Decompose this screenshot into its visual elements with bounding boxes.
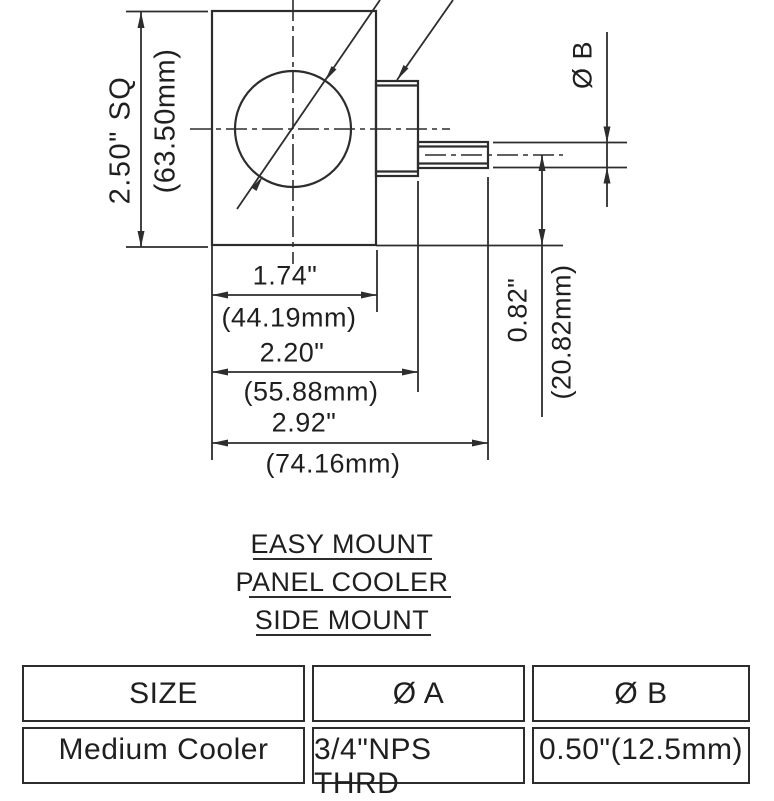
dim-stub-offset	[376, 155, 563, 417]
plate-size-mm-label: (63.50mm)	[153, 49, 180, 194]
width2-inches-label: 2.20"	[260, 340, 325, 367]
dim-arrowhead	[138, 12, 145, 28]
dim-stub-diameter	[493, 32, 627, 207]
leader-arrowhead	[397, 65, 409, 80]
offset-mm-label: (20.82mm)	[549, 264, 576, 399]
dim-arrowhead	[472, 440, 488, 447]
hole-diameter-leader	[237, 0, 380, 209]
title-underline	[249, 596, 451, 598]
dim-arrowhead	[212, 440, 228, 447]
dim-arrowhead	[539, 229, 546, 245]
title-underline	[253, 558, 432, 560]
table-header-dia-a: Ø A	[312, 665, 525, 722]
plate-size-inches-label: 2.50" SQ	[108, 76, 135, 205]
table-header-dia-b: Ø B	[532, 665, 750, 722]
dim-arrowhead	[361, 292, 377, 299]
title-easy-mount: EASY MOUNT	[192, 531, 492, 558]
dim-arrowhead	[402, 369, 418, 376]
table-cell-dia-a-value: 3/4"NPS THRD	[312, 727, 525, 784]
size-spec-table: SIZE Ø A Ø B Medium Cooler 3/4"NPS THRD …	[22, 665, 750, 784]
table-cell-dia-b-value: 0.50"(12.5mm)	[532, 727, 750, 784]
leader-arrowhead	[325, 66, 337, 81]
table-header-size: SIZE	[22, 665, 305, 722]
width2-mm-label: (55.88mm)	[243, 379, 378, 406]
width3-inches-label: 2.92"	[272, 410, 337, 437]
title-panel-cooler: PANEL COOLER	[192, 569, 492, 596]
dim-arrowhead	[539, 155, 546, 171]
dim-arrowhead	[604, 127, 611, 143]
dim-arrowhead	[212, 369, 228, 376]
title-underline	[256, 634, 431, 636]
title-side-mount: SIDE MOUNT	[192, 607, 492, 634]
dim-arrowhead	[604, 168, 611, 184]
width3-mm-label: (74.16mm)	[265, 451, 400, 478]
plate-outline	[212, 11, 376, 245]
dim-arrowhead	[138, 231, 145, 247]
width1-inches-label: 1.74"	[253, 263, 318, 290]
offset-inches-label: 0.82"	[505, 278, 532, 343]
width1-mm-label: (44.19mm)	[221, 305, 356, 332]
dim-arrowhead	[212, 292, 228, 299]
panel-cooler-drawing-page: 2.50" SQ (63.50mm) 1.74" (44.19mm) 2.20"…	[0, 0, 774, 750]
diameter-b-label: Ø B	[570, 41, 597, 89]
table-cell-size-value: Medium Cooler	[22, 727, 305, 784]
